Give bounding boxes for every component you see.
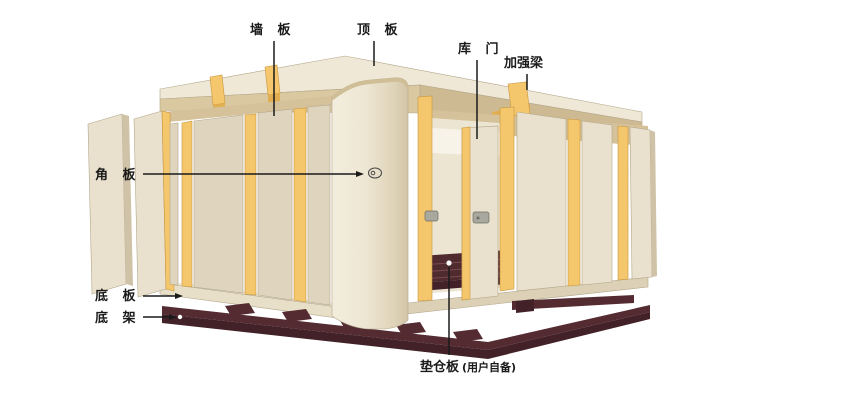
wall-panel xyxy=(170,123,178,285)
wall-panel xyxy=(308,105,330,305)
joint-strip xyxy=(568,119,580,286)
label-corner-panel: 角 板 xyxy=(95,167,141,183)
label-reinforcement-beam: 加强梁 xyxy=(503,55,544,71)
diagram-canvas: 墙 板 顶 板 库 门 加强梁 角 板 底 板 底 架 垫仓板 (用户自备) xyxy=(0,0,849,409)
wall-panel xyxy=(258,109,292,300)
wall-panel xyxy=(88,114,133,294)
door-frame-post xyxy=(500,107,514,291)
label-bottom-panel: 底 板 xyxy=(95,288,141,304)
door-lock xyxy=(477,217,480,220)
door-panel xyxy=(462,126,498,300)
corner-panel xyxy=(332,78,408,329)
cold-room-assembly-diagram: 墙 板 顶 板 库 门 加强梁 角 板 底 板 底 架 垫仓板 (用户自备) xyxy=(0,0,849,409)
pointer-dot xyxy=(446,260,451,265)
joint-strip xyxy=(182,121,192,287)
label-door: 库 门 xyxy=(458,41,504,57)
joint-strip xyxy=(245,114,256,295)
left-wall xyxy=(170,105,330,305)
door-handle xyxy=(473,212,489,223)
wall-panel xyxy=(194,115,243,293)
wall-panel xyxy=(618,126,657,280)
wall-panel xyxy=(582,121,612,285)
joint-strip xyxy=(294,108,306,302)
label-pallet-note: (用户自备) xyxy=(462,360,516,374)
label-pallet: 垫仓板 xyxy=(420,359,460,375)
label-wall-panel: 墙 板 xyxy=(250,22,296,38)
label-top-panel: 顶 板 xyxy=(357,22,403,38)
door-latch xyxy=(425,211,438,221)
label-bottom-frame: 底 架 xyxy=(95,310,141,326)
pointer-dot xyxy=(178,315,182,319)
wall-panel xyxy=(517,112,566,291)
wall-panel xyxy=(134,111,174,297)
